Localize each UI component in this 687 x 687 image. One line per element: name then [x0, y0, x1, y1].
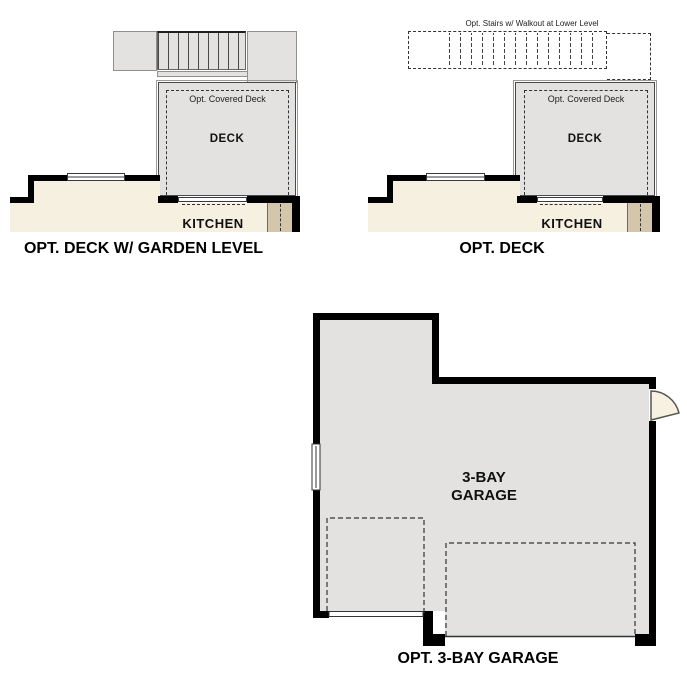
garage-label-line2: GARAGE: [451, 487, 517, 504]
garage-label-line1: 3-BAY: [462, 469, 506, 486]
garage-title: OPT. 3-BAY GARAGE: [348, 650, 608, 668]
garage-wall-bottom-left: [313, 611, 329, 618]
deck-garden-title: OPT. DECK W/ GARDEN LEVEL: [2, 240, 285, 258]
stairs-landing: [113, 31, 157, 71]
opt-stairs-outline: [408, 31, 607, 69]
deck-surface: Opt. Covered Deck DECK: [158, 82, 296, 196]
opt-stairs-treads: [449, 33, 601, 67]
deck-wall-left: [517, 196, 537, 203]
deck-wall-left: [158, 196, 178, 203]
kitchen-label: KITCHEN: [173, 216, 253, 231]
garage-wall-bottom-right: [635, 634, 656, 646]
kitchen-wall-right-bar: [652, 196, 660, 232]
kitchen-window: [426, 173, 485, 181]
deck-label: DECK: [516, 133, 654, 145]
garage-wall-right-upper: [649, 377, 656, 389]
deck-door: [178, 197, 247, 202]
covered-deck-label: Opt. Covered Deck: [167, 94, 288, 104]
garage-wall-right-lower: [649, 421, 656, 646]
kitchen-cabinet: [627, 203, 652, 232]
covered-deck-label: Opt. Covered Deck: [525, 94, 647, 104]
kitchen-floor-upper: [34, 181, 160, 204]
opt-stairs-extension: [607, 33, 651, 80]
garage-wall-left-lower: [313, 490, 320, 618]
deck-surface: Opt. Covered Deck DECK: [515, 82, 655, 196]
garage-wall-notch-v: [432, 313, 439, 384]
garage-plan: 3-BAY GARAGE: [295, 303, 687, 655]
kitchen-floor-upper: [393, 181, 520, 204]
cabinet-dash-line: [640, 204, 641, 231]
kitchen-cabinet: [267, 203, 292, 232]
opt-deck-title: OPT. DECK: [412, 240, 592, 258]
kitchen-wall-right-bar: [292, 196, 300, 232]
garage-wall-left-upper: [313, 313, 320, 444]
kitchen-window: [67, 173, 125, 181]
kitchen-label: KITCHEN: [532, 216, 612, 231]
stairs-connector: [247, 31, 297, 83]
deck-label: DECK: [159, 133, 295, 145]
garage-wall-notch-h: [432, 377, 656, 384]
garage-wall-top: [313, 313, 439, 320]
stairs-treads: [157, 31, 246, 70]
deck-door-dash: [540, 204, 601, 205]
deck-door: [537, 197, 603, 202]
garage-door-left: [329, 612, 423, 617]
stairs-rail: [157, 71, 253, 77]
opt-stairs-label: Opt. Stairs w/ Walkout at Lower Level: [432, 19, 632, 28]
garage-wall-step-h: [423, 634, 445, 646]
entry-door-swing: [651, 391, 679, 420]
deck-door-dash: [182, 204, 245, 205]
floor-plan-canvas: Opt. Covered Deck DECK KITCHEN OPT. DECK…: [0, 0, 687, 687]
cabinet-dash-line: [280, 204, 281, 231]
